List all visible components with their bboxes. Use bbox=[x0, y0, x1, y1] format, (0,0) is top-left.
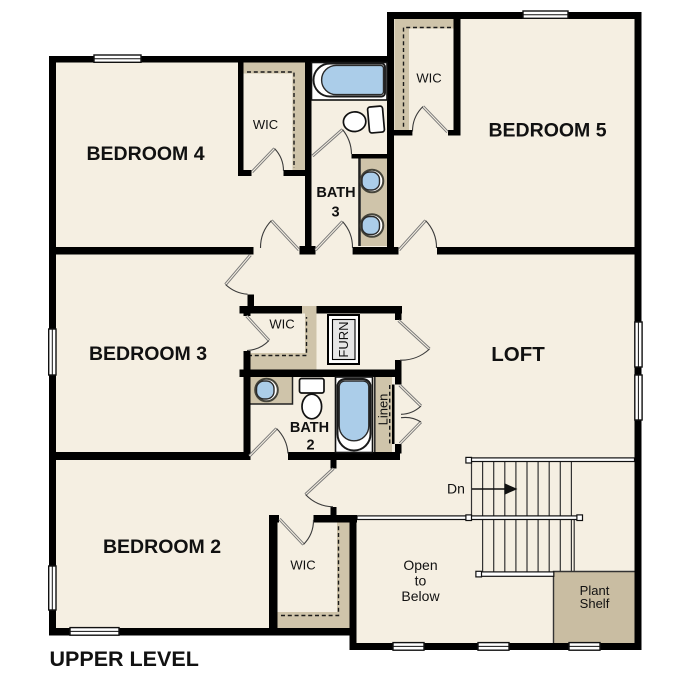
svg-text:WIC: WIC bbox=[416, 71, 441, 86]
svg-text:BATH: BATH bbox=[290, 420, 329, 436]
svg-text:FURN: FURN bbox=[336, 321, 351, 357]
svg-text:WIC: WIC bbox=[269, 317, 294, 332]
svg-text:UPPER LEVEL: UPPER LEVEL bbox=[50, 647, 199, 671]
svg-text:BEDROOM 4: BEDROOM 4 bbox=[86, 143, 204, 165]
svg-text:Below: Below bbox=[401, 588, 440, 604]
svg-text:WIC: WIC bbox=[290, 558, 315, 573]
svg-text:LOFT: LOFT bbox=[491, 343, 545, 366]
svg-text:Dn: Dn bbox=[447, 481, 465, 497]
svg-text:2: 2 bbox=[306, 438, 314, 454]
svg-text:3: 3 bbox=[331, 205, 339, 221]
svg-text:Linen: Linen bbox=[376, 394, 391, 426]
svg-text:Open: Open bbox=[403, 557, 437, 573]
svg-text:BATH: BATH bbox=[316, 185, 355, 201]
svg-text:BEDROOM 3: BEDROOM 3 bbox=[89, 343, 207, 365]
svg-text:Shelf: Shelf bbox=[580, 596, 610, 611]
svg-text:WIC: WIC bbox=[253, 117, 278, 132]
svg-text:to: to bbox=[415, 573, 427, 589]
svg-text:BEDROOM 5: BEDROOM 5 bbox=[488, 120, 606, 142]
svg-text:BEDROOM 2: BEDROOM 2 bbox=[103, 536, 221, 558]
